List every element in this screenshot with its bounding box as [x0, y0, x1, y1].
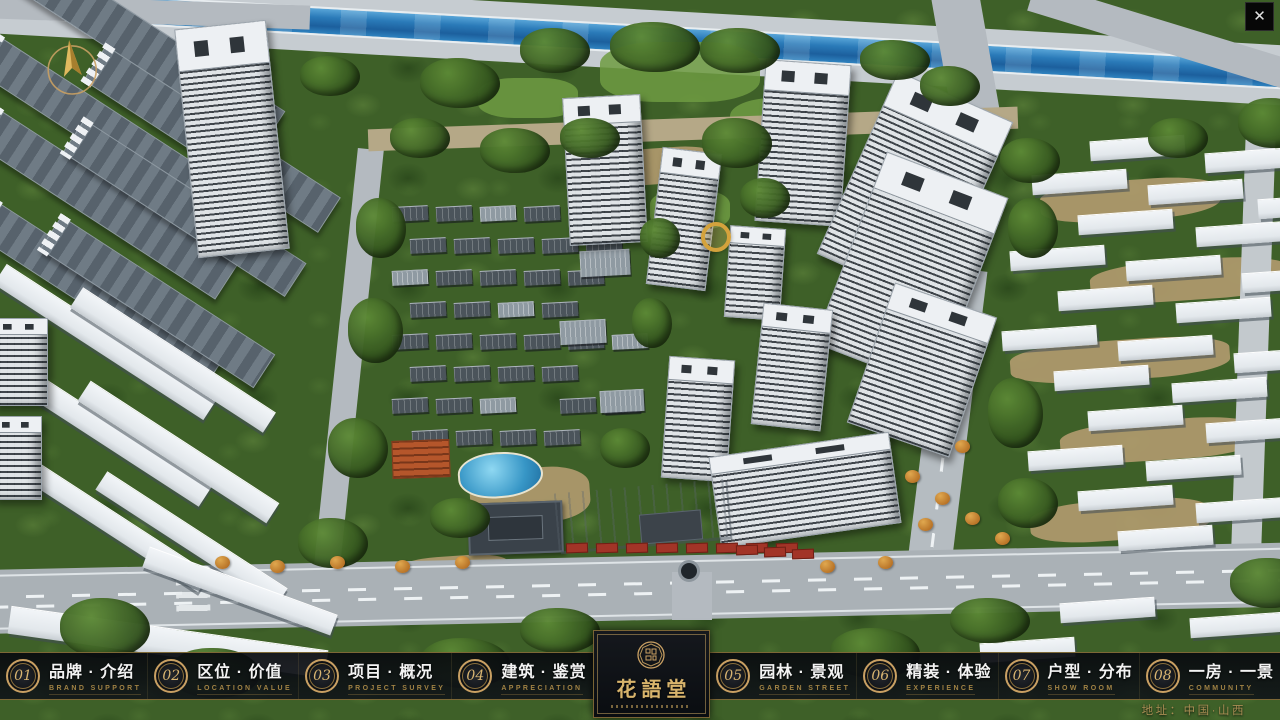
- nav-subtitle: SHOW ROOM: [1048, 685, 1115, 695]
- ornamental-tree: [455, 556, 470, 569]
- ornamental-tree: [935, 492, 950, 505]
- brand-name: 花語堂: [611, 673, 691, 702]
- nav-item-location-value[interactable]: 02 区位 · 价值 LOCATION VALUE: [147, 653, 298, 699]
- tree-cluster: [1008, 198, 1058, 258]
- courtyard-house-roof: [560, 397, 597, 414]
- nav-number: 04: [466, 668, 484, 684]
- brand-tagline-rule: [611, 705, 691, 708]
- bottom-nav: 01 品牌 · 介绍 BRAND SUPPORT 02 区位 · 价值 LOCA…: [0, 652, 1280, 700]
- nav-number-badge: 03: [305, 659, 339, 693]
- nav-number: 03: [313, 668, 331, 684]
- close-button[interactable]: ✕: [1245, 2, 1274, 31]
- courtyard-house-roof: [524, 333, 561, 350]
- storefront: [764, 547, 786, 558]
- nav-title: 园林 · 景观: [759, 658, 844, 682]
- nav-item-brand-intro[interactable]: 01 品牌 · 介绍 BRAND SUPPORT: [0, 653, 147, 699]
- tree-cluster: [740, 178, 790, 218]
- tree-cluster: [348, 298, 403, 363]
- nav-item-project-overview[interactable]: 03 项目 · 概况 PROJECT SURVEY: [298, 653, 451, 699]
- nav-number-badge: 06: [863, 659, 897, 693]
- ornamental-tree: [395, 560, 410, 573]
- edge-tower: [0, 416, 42, 500]
- ornamental-tree: [995, 532, 1010, 545]
- nav-number: 02: [162, 668, 180, 684]
- nav-subtitle: BRAND SUPPORT: [49, 685, 141, 695]
- courtyard-house-roof: [392, 269, 429, 286]
- courtyard-house-roof: [410, 365, 447, 382]
- nav-number-badge: 05: [716, 659, 750, 693]
- tree-cluster: [480, 128, 550, 173]
- ornamental-tree: [820, 560, 835, 573]
- courtyard-house-roof: [524, 269, 561, 286]
- tree-cluster: [300, 56, 360, 96]
- brand-seal-icon: [636, 640, 666, 670]
- courtyard-house-roof: [392, 397, 429, 414]
- ornamental-tree: [215, 556, 230, 569]
- courtyard-house-roof: [454, 301, 491, 318]
- courtyard-house-roof: [410, 301, 447, 318]
- tree-cluster: [950, 598, 1030, 643]
- nav-subtitle: PROJECT SURVEY: [348, 685, 445, 695]
- tree-cluster: [356, 198, 406, 258]
- courtyard-house-roof: [542, 301, 579, 318]
- ornamental-tree: [918, 518, 933, 531]
- tree-cluster: [610, 22, 700, 72]
- edge-tower: [0, 318, 48, 406]
- nav-subtitle: APPRECIATION: [501, 685, 582, 695]
- community-building-roof: [559, 319, 606, 345]
- nav-title: 一房 · 一景: [1189, 658, 1274, 682]
- nav-title: 建筑 · 鉴赏: [501, 658, 586, 682]
- tree-cluster: [700, 28, 780, 73]
- nav-number: 08: [1154, 668, 1172, 684]
- entrance-fountain: [678, 560, 700, 582]
- courtyard-house-roof: [480, 397, 517, 414]
- courtyard-house-roof: [498, 237, 535, 254]
- nav-subtitle: COMMUNITY: [1189, 685, 1254, 695]
- nav-item-floorplan-distribution[interactable]: 07 户型 · 分布 SHOW ROOM: [998, 653, 1139, 699]
- garden-art-feature: [701, 222, 731, 252]
- ornamental-tree: [270, 560, 285, 573]
- compass-icon: [37, 31, 108, 105]
- nav-subtitle: GARDEN STREET: [759, 685, 850, 695]
- brand-logo-plaque: 花語堂: [593, 630, 711, 718]
- nav-number-badge: 08: [1146, 659, 1180, 693]
- courtyard-house-roof: [436, 397, 473, 414]
- project-address: 地址：中国·山西: [1142, 702, 1246, 718]
- nav-subtitle: LOCATION VALUE: [197, 685, 292, 695]
- sales-presentation-screen: ✕ 01 品牌 · 介绍 BRAND SUPPORT 02 区位 · 价值 LO…: [0, 0, 1280, 720]
- masterplan-3d-view[interactable]: [0, 0, 1280, 720]
- courtyard-house-roof: [436, 269, 473, 286]
- courtyard-house-roof: [480, 205, 517, 222]
- storefront: [566, 543, 588, 554]
- tree-cluster: [420, 58, 500, 108]
- tree-cluster: [702, 118, 772, 168]
- clubhouse-courtyard: [488, 515, 544, 541]
- nav-group-left: 01 品牌 · 介绍 BRAND SUPPORT 02 区位 · 价值 LOCA…: [0, 652, 593, 700]
- nav-group-right: 05 园林 · 景观 GARDEN STREET 06 精装 · 体验 EXPE…: [710, 652, 1280, 700]
- tree-cluster: [520, 608, 600, 653]
- highrise-tower: [751, 303, 833, 432]
- nav-number-badge: 04: [458, 659, 492, 693]
- courtyard-house-roof: [436, 333, 473, 350]
- nav-number: 05: [724, 668, 742, 684]
- tree-cluster: [1000, 138, 1060, 183]
- nav-item-architecture-appreciation[interactable]: 04 建筑 · 鉴赏 APPRECIATION: [451, 653, 592, 699]
- nav-number-badge: 07: [1005, 659, 1039, 693]
- nav-title: 户型 · 分布: [1048, 658, 1133, 682]
- storefront: [626, 543, 648, 554]
- tree-cluster: [430, 498, 490, 538]
- storefront: [686, 543, 708, 554]
- orange-roof-building: [391, 439, 450, 479]
- courtyard-house-roof: [454, 237, 491, 254]
- courtyard-house-roof: [498, 365, 535, 382]
- ornamental-tree: [955, 440, 970, 453]
- nav-item-one-room-one-view[interactable]: 08 一房 · 一景 COMMUNITY: [1139, 653, 1280, 699]
- nav-subtitle: EXPERIENCE: [906, 685, 975, 695]
- courtyard-house-roof: [480, 333, 517, 350]
- tree-cluster: [640, 218, 680, 258]
- tree-cluster: [560, 118, 620, 158]
- close-icon: ✕: [1253, 8, 1266, 25]
- tree-cluster: [60, 598, 150, 658]
- brand-logo-frame: 花語堂: [597, 634, 707, 714]
- ornamental-tree: [330, 556, 345, 569]
- entrance-canopy: [639, 509, 703, 544]
- storefront: [656, 543, 678, 554]
- ornamental-tree: [965, 512, 980, 525]
- tree-cluster: [988, 378, 1043, 448]
- nav-title: 区位 · 价值: [197, 658, 282, 682]
- nav-number: 01: [14, 668, 32, 684]
- courtyard-house-roof: [498, 301, 535, 318]
- ornamental-tree: [878, 556, 893, 569]
- tree-cluster: [520, 28, 590, 73]
- tree-cluster: [632, 298, 672, 348]
- courtyard-house-roof: [542, 365, 579, 382]
- storefront: [596, 543, 618, 554]
- courtyard-house-roof: [410, 237, 447, 254]
- highrise-tower: [562, 94, 648, 246]
- nav-title: 精装 · 体验: [906, 658, 991, 682]
- tree-cluster: [390, 118, 450, 158]
- tree-cluster: [600, 428, 650, 468]
- nav-number: 07: [1013, 668, 1031, 684]
- nav-item-interior-experience[interactable]: 06 精装 · 体验 EXPERIENCE: [856, 653, 997, 699]
- courtyard-house-roof: [480, 269, 517, 286]
- nav-title: 品牌 · 介绍: [49, 658, 134, 682]
- tree-cluster: [920, 66, 980, 106]
- tree-cluster: [998, 478, 1058, 528]
- courtyard-house-roof: [524, 205, 561, 222]
- nav-title: 项目 · 概况: [348, 658, 433, 682]
- storefront: [736, 545, 758, 556]
- tree-cluster: [328, 418, 388, 478]
- courtyard-house-roof: [544, 429, 581, 446]
- tree-cluster: [1148, 118, 1208, 158]
- nav-item-garden-landscape[interactable]: 05 园林 · 景观 GARDEN STREET: [710, 653, 856, 699]
- nav-number-badge: 01: [6, 659, 40, 693]
- community-building-roof: [599, 389, 644, 413]
- courtyard-house-roof: [436, 205, 473, 222]
- courtyard-house-roof: [454, 365, 491, 382]
- courtyard-house-roof: [456, 429, 493, 446]
- storefront: [716, 543, 738, 554]
- ornamental-tree: [905, 470, 920, 483]
- courtyard-house-roof: [500, 429, 537, 446]
- nav-number-badge: 02: [154, 659, 188, 693]
- community-building-roof: [579, 249, 630, 278]
- nav-number: 06: [871, 668, 889, 684]
- tree-cluster: [860, 40, 930, 80]
- storefront: [792, 549, 814, 560]
